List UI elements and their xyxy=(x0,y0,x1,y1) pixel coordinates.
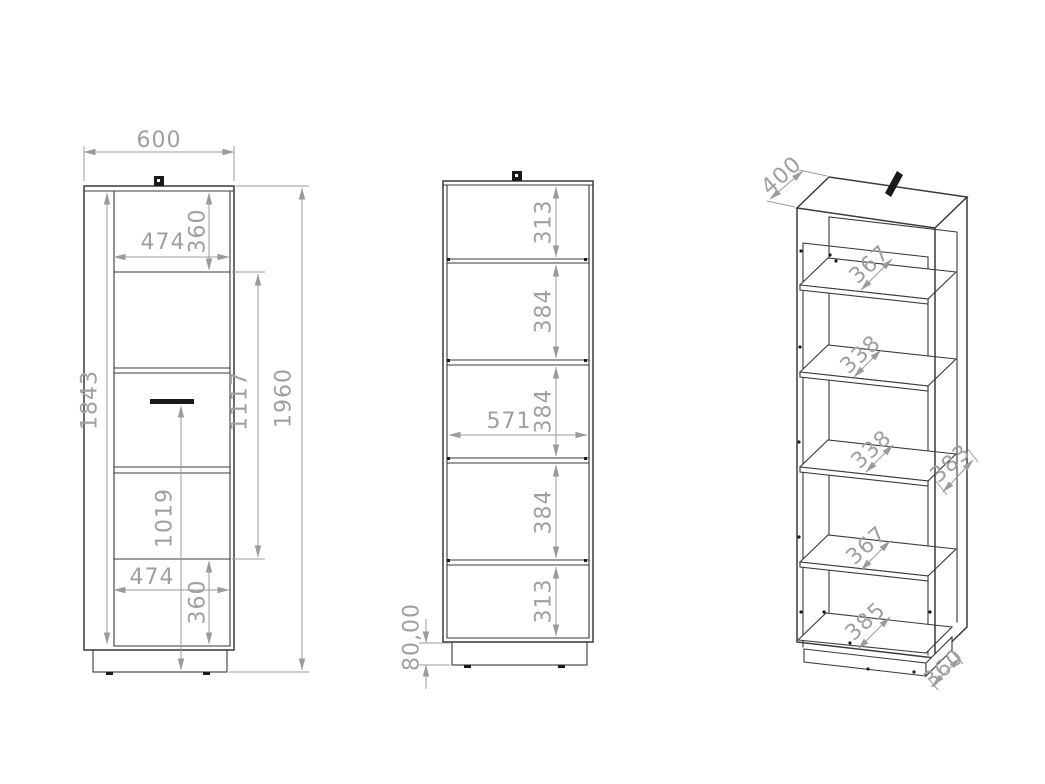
dim-compartment-2: 384 xyxy=(532,289,557,334)
dim-compartment-3: 384 xyxy=(532,389,557,434)
dim-compartment-1: 313 xyxy=(532,200,557,245)
right-side-panel xyxy=(935,197,967,658)
plinth xyxy=(93,650,227,672)
dim-plinth-height: 80,00 xyxy=(400,603,425,671)
door-handle xyxy=(150,399,194,404)
top-face xyxy=(797,177,967,228)
plinth-front xyxy=(804,649,926,676)
foot-marker xyxy=(106,672,113,675)
foot-marker xyxy=(203,672,210,675)
foot-marker xyxy=(558,665,565,668)
dim-compartment-4: 384 xyxy=(532,490,557,535)
dim-mid-section: 1117 xyxy=(228,371,253,431)
front-view-closed: 600 474 360 1843 1117 1019 196 xyxy=(78,128,309,675)
dim-door-bottom-width: 474 xyxy=(130,565,175,590)
dim-side-depth: 383 xyxy=(926,440,976,489)
plinth xyxy=(452,642,587,665)
dim-compartment-5: 313 xyxy=(532,579,557,624)
technical-drawing-page: 600 474 360 1843 1117 1019 196 xyxy=(0,0,1045,784)
dim-door-top-height: 360 xyxy=(186,209,211,254)
foot-marker xyxy=(464,665,471,668)
dim-door-bottom-height: 360 xyxy=(186,580,211,625)
dim-door-height: 1843 xyxy=(78,370,103,430)
fitting-detail xyxy=(157,179,160,182)
isometric-view: 400 367 338 338 383 367 385 360 xyxy=(757,152,978,694)
front-view-open: 313 384 384 571 384 313 80,00 xyxy=(400,171,593,689)
dim-inner-width: 571 xyxy=(487,409,532,434)
dim-total-height: 1960 xyxy=(272,368,297,428)
dim-door-top-width: 474 xyxy=(141,230,186,255)
dim-top-depth: 400 xyxy=(757,152,807,201)
dim-handle-height: 1019 xyxy=(153,488,178,548)
fitting-detail xyxy=(515,174,518,177)
cabinet-technical-drawing: 600 474 360 1843 1117 1019 196 xyxy=(0,0,1045,784)
dim-front-width: 600 xyxy=(137,128,182,153)
shelf-lines xyxy=(447,259,589,638)
top-fitting-marker xyxy=(885,171,903,197)
